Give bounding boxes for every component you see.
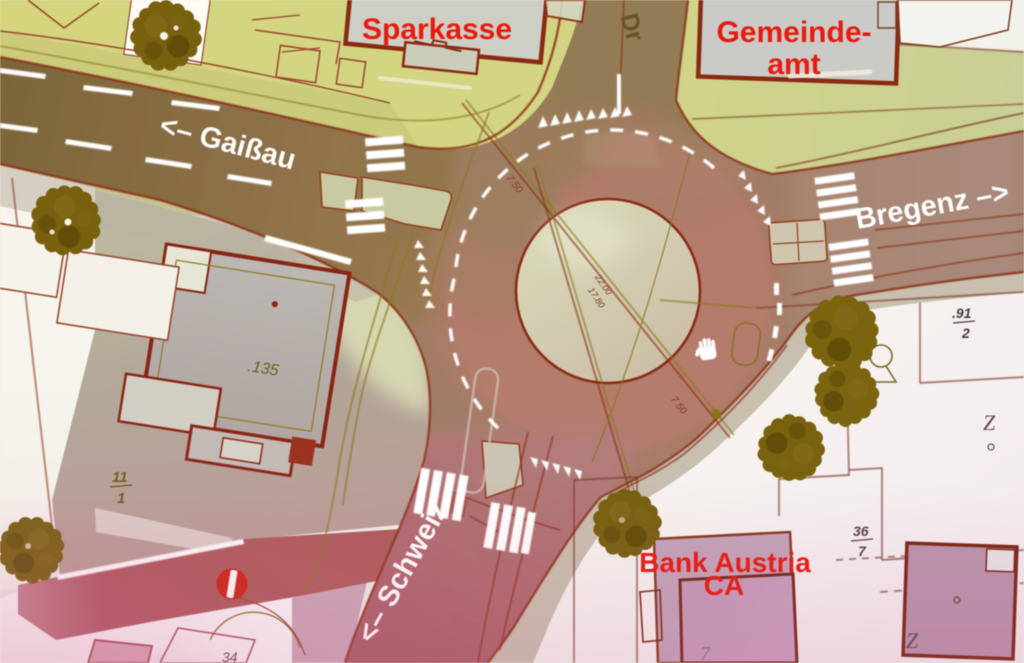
svg-text:.91: .91 xyxy=(952,305,972,321)
svg-text:CA: CA xyxy=(704,570,744,601)
svg-text:amt: amt xyxy=(767,48,820,81)
svg-text:7: 7 xyxy=(700,643,711,663)
svg-text:7: 7 xyxy=(858,543,867,559)
svg-text:36: 36 xyxy=(853,523,869,539)
svg-text:Sparkasse: Sparkasse xyxy=(362,13,512,46)
svg-text:Z: Z xyxy=(906,628,919,653)
svg-text:34: 34 xyxy=(222,649,238,663)
svg-text:2: 2 xyxy=(961,325,970,341)
svg-text:11: 11 xyxy=(112,469,128,486)
svg-text:Z: Z xyxy=(983,410,996,435)
svg-text:Gemeinde-: Gemeinde- xyxy=(716,16,871,49)
svg-text:1: 1 xyxy=(117,490,125,507)
